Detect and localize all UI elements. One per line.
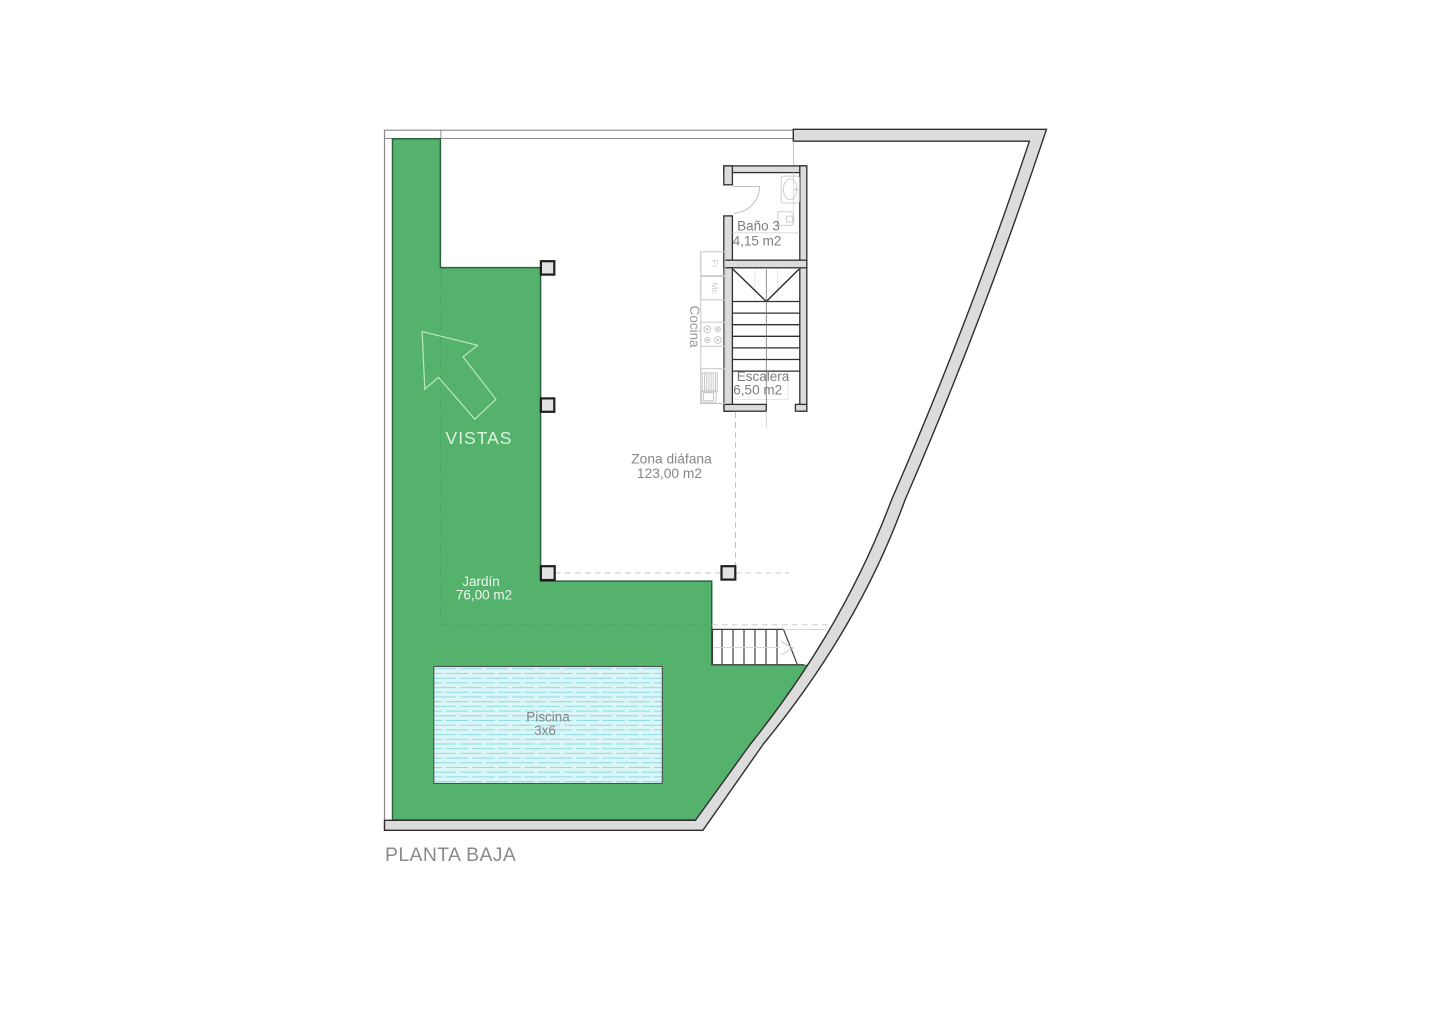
svg-text:76,00 m2: 76,00 m2 <box>456 587 512 602</box>
svg-text:VISTAS: VISTAS <box>446 428 513 448</box>
svg-text:6,50 m2: 6,50 m2 <box>733 382 782 397</box>
svg-text:Baño 3: Baño 3 <box>737 219 780 234</box>
svg-text:Cocina: Cocina <box>687 305 702 348</box>
svg-text:123,00 m2: 123,00 m2 <box>637 466 702 481</box>
svg-text:4,15 m2: 4,15 m2 <box>733 233 782 248</box>
svg-text:3x6: 3x6 <box>534 723 556 738</box>
svg-text:Mc: Mc <box>710 283 720 295</box>
svg-text:Zona diáfana: Zona diáfana <box>631 452 712 467</box>
svg-text:PLANTA BAJA: PLANTA BAJA <box>385 844 516 866</box>
svg-text:Fr: Fr <box>710 260 720 268</box>
